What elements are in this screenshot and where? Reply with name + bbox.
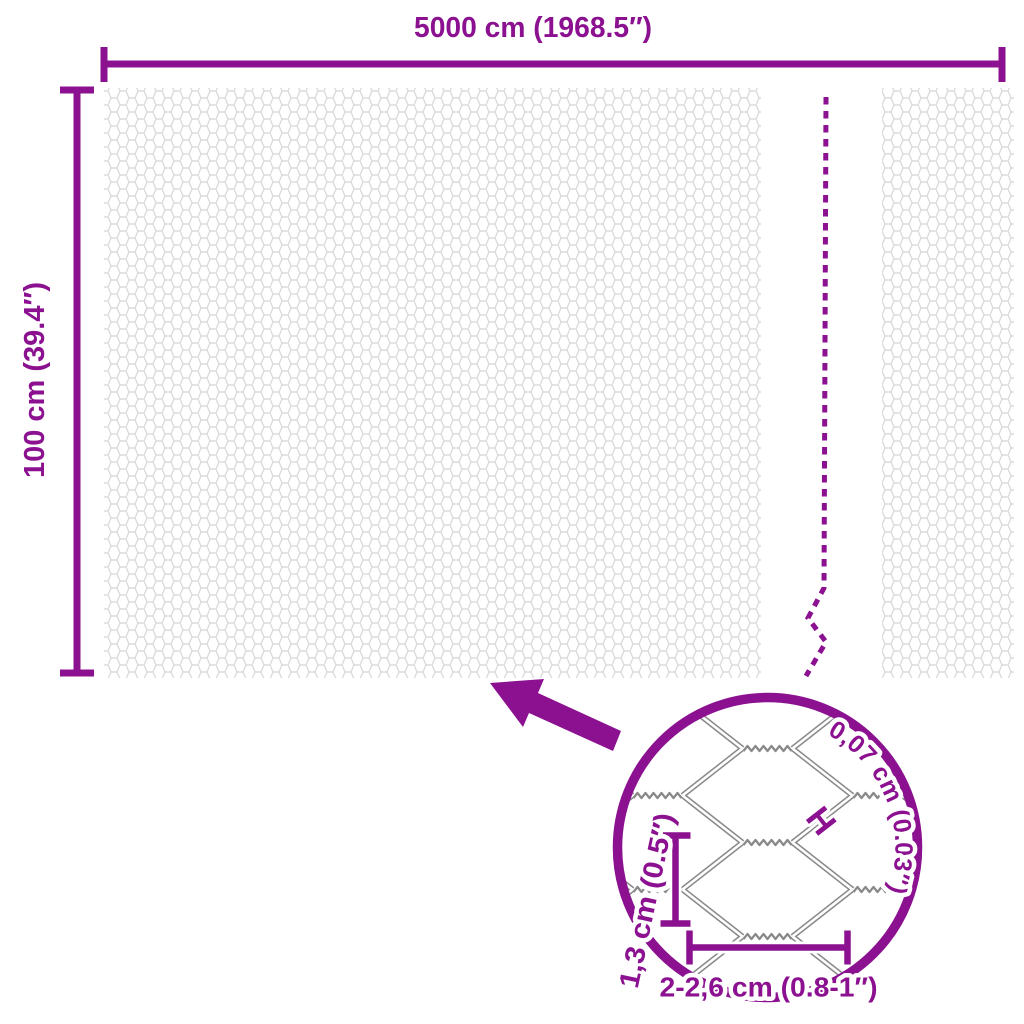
mesh-panel-right	[882, 88, 1014, 678]
panel-break-dashed-line	[806, 97, 826, 676]
wire-twist	[634, 793, 682, 798]
wire-twist	[744, 746, 792, 751]
mesh-panel-left	[104, 88, 761, 678]
height-dimension-label: 100 cm (39.4″)	[19, 282, 51, 478]
wire-twist	[744, 934, 792, 939]
wire-twist	[744, 840, 792, 845]
width-dimension: 5000 cm (1968.5″)	[104, 12, 1002, 82]
width-dimension-label: 5000 cm (1968.5″)	[414, 12, 652, 44]
product-dimension-diagram: 5000 cm (1968.5″) 100 cm (39.4″)	[0, 0, 1024, 1024]
zoom-arrow-icon	[490, 679, 621, 751]
mesh-width-label: 2-2,6 cm (0.8-1″)	[660, 972, 878, 1003]
height-dimension-line	[60, 90, 94, 673]
height-dimension: 100 cm (39.4″)	[19, 90, 94, 673]
width-dimension-line	[104, 47, 1002, 82]
diagram-canvas: 5000 cm (1968.5″) 100 cm (39.4″)	[0, 0, 1024, 1024]
